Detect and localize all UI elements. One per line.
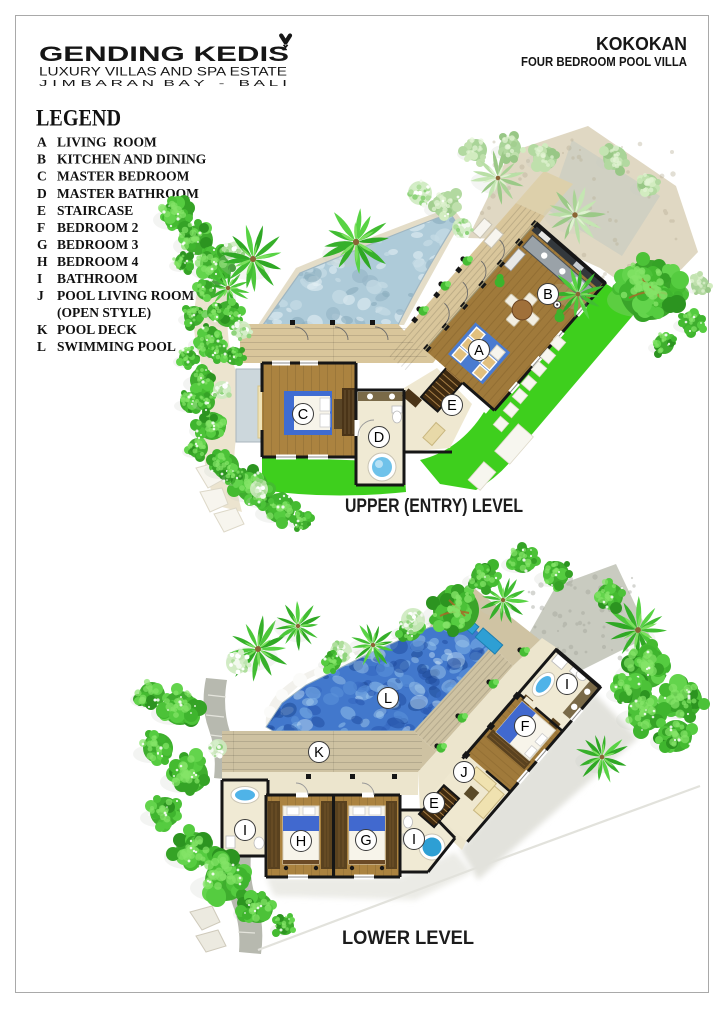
svg-text:H: H [37,254,48,269]
svg-text:J I M B A R A N B A Y - B: J I M B A R A N B A Y - B A L I [39,78,287,88]
svg-text:K: K [37,322,48,337]
svg-text:E: E [447,398,457,414]
svg-text:B: B [543,287,553,303]
svg-text:BEDROOM 3: BEDROOM 3 [57,237,139,252]
svg-text:BATHROOM: BATHROOM [57,271,138,286]
svg-text:E: E [37,203,46,218]
svg-text:LIVING ROOM: LIVING ROOM [57,135,157,150]
svg-text:I: I [37,271,42,286]
svg-text:K: K [314,745,324,761]
svg-text:F: F [37,220,45,235]
svg-text:SWIMMING POOL: SWIMMING POOL [57,339,176,354]
svg-text:I: I [565,677,569,693]
svg-text:I: I [243,823,247,839]
svg-text:J: J [460,765,467,781]
svg-text:MASTER BEDROOM: MASTER BEDROOM [57,169,190,184]
svg-text:STAIRCASE: STAIRCASE [57,203,133,218]
svg-text:LOWER LEVEL: LOWER LEVEL [342,927,474,949]
svg-text:LUXURY VILLAS AND SPA ESTATE: LUXURY VILLAS AND SPA ESTATE [39,67,287,79]
svg-text:GENDING KEDIS: GENDING KEDIS [39,43,289,66]
svg-text:UPPER (ENTRY) LEVEL: UPPER (ENTRY) LEVEL [345,496,523,517]
svg-text:FOUR BEDROOM POOL VILLA: FOUR BEDROOM POOL VILLA [521,54,688,69]
svg-text:L: L [37,339,46,354]
svg-text:(OPEN STYLE): (OPEN STYLE) [57,305,151,320]
svg-text:KOKOKAN: KOKOKAN [596,33,687,54]
svg-text:KITCHEN AND DINING: KITCHEN AND DINING [57,152,207,167]
svg-text:G: G [360,833,371,849]
svg-text:A: A [37,135,47,150]
svg-text:D: D [374,430,384,446]
svg-text:C: C [37,169,47,184]
svg-text:D: D [37,186,47,201]
svg-text:POOL LIVING ROOM: POOL LIVING ROOM [57,288,195,303]
svg-text:A: A [474,343,484,359]
svg-text:B: B [37,152,46,167]
svg-text:E: E [429,796,439,812]
svg-text:H: H [296,834,306,850]
svg-text:POOL DECK: POOL DECK [57,322,137,337]
svg-text:BEDROOM 2: BEDROOM 2 [57,220,139,235]
svg-text:F: F [521,719,530,735]
svg-text:G: G [37,237,48,252]
svg-text:J: J [37,288,44,303]
svg-text:I: I [412,832,416,848]
svg-text:C: C [298,407,308,423]
svg-text:BEDROOM 4: BEDROOM 4 [57,254,139,269]
svg-text:LEGEND: LEGEND [36,106,121,131]
svg-text:L: L [384,691,392,707]
